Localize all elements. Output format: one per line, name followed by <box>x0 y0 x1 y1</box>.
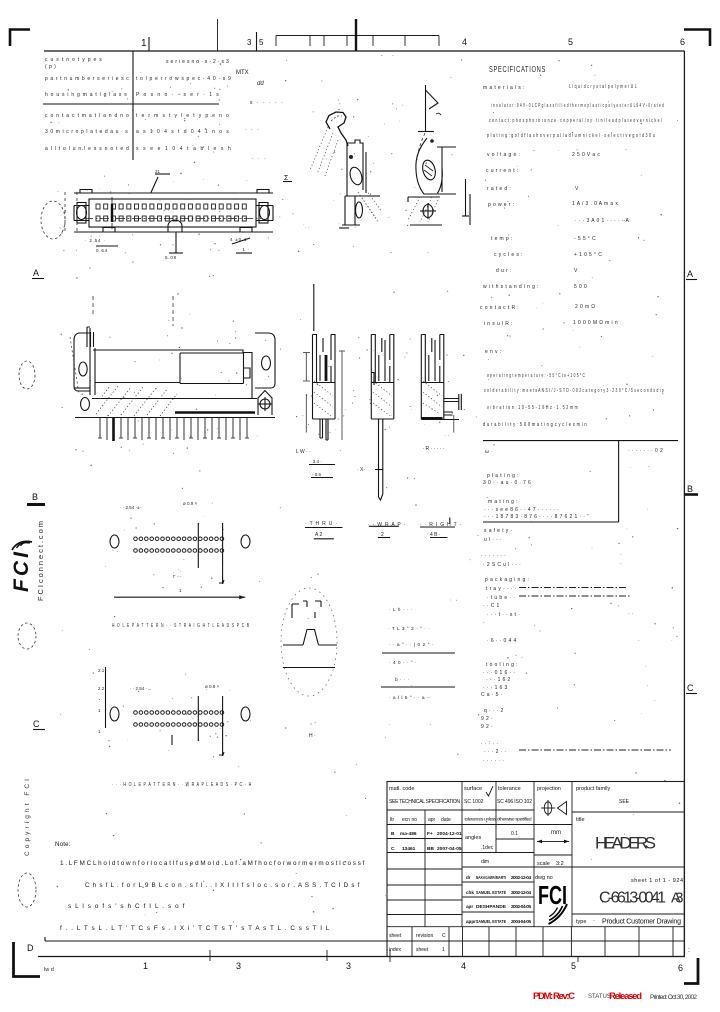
svg-text:9 2 ·: 9 2 · <box>481 716 493 722</box>
svg-text:6: 6 <box>680 37 685 47</box>
svg-text:a l l t o l u n l e s s n o: a l l t o l u n l e s s n o t e d <box>45 146 130 152</box>
svg-text:V: V <box>574 268 578 274</box>
svg-text:h o u s i n g m a t l g l a: h o u s i n g m a t l g l a s s <box>45 92 128 98</box>
svg-text:c y c l e s :: c y c l e s : <box>494 252 523 258</box>
svg-text:· 1 ·: · 1 · <box>238 247 250 252</box>
svg-text:BB: BB <box>427 846 434 852</box>
svg-text:A: A <box>33 268 39 278</box>
svg-text:· · · · ·: · · · · · <box>481 741 498 747</box>
svg-text:SAMUEL ESTATE: SAMUEL ESTATE <box>476 890 506 895</box>
svg-text:F+: F+ <box>427 831 433 837</box>
svg-text:· 2.54 ·: · 2.54 · <box>85 238 106 243</box>
svg-text:c u r r e n t :: c u r r e n t : <box>486 168 519 174</box>
svg-text:t o o l i n g :: t o o l i n g : <box>486 662 518 668</box>
svg-text:m a t i n g :: m a t i n g : <box>488 499 518 505</box>
svg-text:3: 3 <box>247 38 252 47</box>
svg-text:t r a y · · · ·: t r a y · · · · <box>486 586 517 592</box>
svg-text:· ·: · · <box>628 611 634 617</box>
svg-text:chk: chk <box>466 890 474 895</box>
svg-text:· a l l 5 ° · · a ·: · a l l 5 ° · · a · <box>389 695 429 701</box>
svg-text:L i q u i d c r y s t a l p: L i q u i d c r y s t a l p o l y m e r … <box>569 84 637 90</box>
svg-text:sheet: sheet <box>389 933 402 939</box>
svg-text:· · · 1 6 3: · · · 1 6 3 <box>483 685 508 691</box>
svg-text:5: 5 <box>571 961 576 971</box>
svg-text:projection: projection <box>537 786 561 792</box>
svg-text:· ·: · · <box>445 433 449 438</box>
svg-text:dd: dd <box>257 81 264 87</box>
svg-text:2002-12-04: 2002-12-04 <box>511 890 531 895</box>
svg-text:c o n t a c t : p h o s p h o: c o n t a c t : p h o s p h o r b r o n … <box>489 118 662 124</box>
svg-text:3 0 m i c r o p l a t e d a: 3 0 m i c r o p l a t e d a u · s <box>45 129 129 135</box>
svg-text:· · 2.54 ·±·: · · 2.54 ·±· <box>120 505 141 510</box>
svg-text:type: type <box>576 919 586 925</box>
svg-text:t e m p :: t e m p : <box>491 236 513 242</box>
svg-text:tolerances unless otherwise sp: tolerances unless otherwise specified <box>465 817 532 822</box>
svg-text:revision: revision <box>416 933 433 939</box>
svg-text:2002-12-04: 2002-12-04 <box>511 875 531 880</box>
svg-text:s · · · · ·: s · · · · · <box>250 100 284 106</box>
svg-text:ltr: ltr <box>390 817 395 823</box>
svg-text:c o n t a c t R :: c o n t a c t R : <box>480 305 519 311</box>
svg-text:2.1: 2.1 <box>98 668 105 673</box>
svg-text:ω ·: ω · <box>485 449 493 455</box>
svg-text:3: 3 <box>346 961 351 971</box>
svg-text:H O L E P A T T E R N · · S: H O L E P A T T E R N · · S T R A I G H … <box>112 623 250 629</box>
svg-text:ø 0.9 ˄: ø 0.9 ˄ <box>183 501 198 506</box>
svg-text:· · W R A P ·: · · W R A P · <box>368 522 406 528</box>
svg-text:0.64: 0.64 <box>96 248 108 253</box>
svg-text:1 0 0 0 M Ω m i n: 1 0 0 0 M Ω m i n <box>573 320 618 326</box>
svg-text:date: date <box>441 817 451 823</box>
svg-text:·: · <box>483 620 485 626</box>
svg-text:u l · · ·: u l · · · <box>484 537 502 543</box>
svg-text:3 0 · · a u · 0 . 7 6: 3 0 · · a u · 0 . 7 6 <box>483 480 531 486</box>
svg-text:SC 1002: SC 1002 <box>464 799 484 805</box>
svg-text:b · · ·: b · · · <box>395 677 410 683</box>
svg-text:· · · · · · · 0 2: · · · · · · · 0 2 <box>628 448 663 454</box>
svg-text:1 A / 3 . 0 A m a x: 1 A / 3 . 0 A m a x <box>572 201 618 207</box>
svg-text:9 2 ·: 9 2 · <box>481 724 493 730</box>
svg-text:q · · · 2: q · · · 2 <box>484 708 504 714</box>
svg-text:DESHPANDE: DESHPANDE <box>476 904 506 909</box>
svg-text:dwg no: dwg no <box>535 875 553 881</box>
svg-text:· · · 0 1 6 · ·: · · · 0 1 6 · · <box>483 670 515 676</box>
svg-text:3: 3 <box>236 961 241 971</box>
svg-text:surface: surface <box>464 786 482 792</box>
svg-text:· R · · · · ·: · R · · · · · <box>423 446 445 452</box>
svg-text:matl. code: matl. code <box>389 786 414 792</box>
svg-text:dim: dim <box>481 859 489 865</box>
svg-text:w i t h s t a n d i n g :: w i t h s t a n d i n g : <box>483 284 539 290</box>
svg-text:· 0.6: · 0.6 <box>312 472 322 477</box>
svg-text:i n s u l R :: i n s u l R : <box>484 321 513 327</box>
svg-text:p o w e r :: p o w e r : <box>488 202 514 208</box>
svg-text:C: C <box>391 846 395 852</box>
svg-text:· 4 0 · · ° ·: · 4 0 · · ° · <box>389 660 417 666</box>
svg-text:index: index <box>389 947 401 953</box>
svg-text:.1dec: .1dec <box>481 845 494 851</box>
svg-text:tolerance: tolerance <box>498 786 521 792</box>
svg-text:MTX: MTX <box>236 70 249 76</box>
svg-text:· t u b e · ·: · t u b e · · <box>487 595 515 601</box>
svg-text:mm: mm <box>551 830 561 836</box>
svg-text:5: 5 <box>568 37 573 47</box>
svg-text:P o s n o · · s e r · 1 s: P o s n o · · s e r · 1 s <box>136 92 220 98</box>
svg-text:4: 4 <box>461 961 466 971</box>
svg-text:s a f e t y ·: s a f e t y · <box>484 528 513 534</box>
svg-text:NAKAGAWA/MARTI: NAKAGAWA/MARTI <box>476 875 506 880</box>
svg-text:SC 496 ISO 102: SC 496 ISO 102 <box>497 799 532 805</box>
svg-text:v o l t a g e :: v o l t a g e : <box>487 152 520 158</box>
svg-text:r a t e d :: r a t e d : <box>487 186 511 192</box>
svg-text:· · · · · · ·: · · · · · · · <box>481 553 506 559</box>
svg-text:· · · s e e 8 6 · · 4 7: · · · s e e 8 6 · · 4 7 · · · · · · <box>484 507 559 513</box>
svg-text:apr: apr <box>466 904 473 909</box>
svg-text:· · · 1 8 7 8 3 · 8 7 6 ·: · · · 1 8 7 8 3 · 8 7 6 · · · · 8 7 6 2 … <box>484 514 585 520</box>
svg-text:s o l d e r a b i l i t y : m: s o l d e r a b i l i t y : m e e t s A … <box>484 388 664 394</box>
svg-text:·: · <box>620 552 622 558</box>
svg-text:·: · <box>168 748 170 753</box>
svg-text:v i b r a t i o n : 1 0 - 5 5: v i b r a t i o n : 1 0 - 5 5 - 1 0 H z … <box>487 405 578 411</box>
svg-text:A3: A3 <box>671 891 684 907</box>
svg-text:C: C <box>442 933 446 939</box>
svg-text:B: B <box>391 831 395 837</box>
svg-text:· L h · · ·: · L h · · · <box>389 607 413 613</box>
svg-text:x s e e 1 0 4 t a b l e s: x s e e 1 0 4 t a b l e s h <box>136 146 232 152</box>
svg-text:· · C 1: · · C 1 <box>483 603 500 609</box>
svg-text:SEE TECHNICAL SPECIFICATION: SEE TECHNICAL SPECIFICATION <box>389 799 460 805</box>
svg-text:Γ ···: Γ ··· <box>173 574 181 579</box>
svg-text:· T L 3 ° 2 · ° · ·: · T L 3 ° 2 · ° · · <box>388 626 430 632</box>
svg-text:2 0 m Ω: 2 0 m Ω <box>575 304 595 310</box>
svg-text:c o n t a c t m a t l a n d: c o n t a c t m a t l a n d n o <box>45 113 130 119</box>
svg-text:5 0 0: 5 0 0 <box>574 284 587 290</box>
svg-text:o p e r a t i n g t e m p e r: o p e r a t i n g t e m p e r a t u r e … <box>487 373 585 379</box>
svg-text:C: C <box>33 719 40 729</box>
svg-text:D: D <box>27 943 34 953</box>
svg-text:·: · <box>620 561 622 567</box>
svg-text:e n v :: e n v : <box>485 349 501 355</box>
svg-text:apr: apr <box>428 817 436 823</box>
svg-text::: : <box>688 947 690 954</box>
svg-text:· · ·: · · · <box>252 156 267 162</box>
svg-text:C a · 5 ·: C a · 5 · <box>481 692 503 698</box>
svg-text:p a r t n u m b e r s e r i: p a r t n u m b e r s e r i e s c <box>45 76 130 82</box>
svg-text:title: title <box>576 817 585 823</box>
svg-text:scale: scale <box>537 861 550 867</box>
svg-text:Printed: Oct 30, 2002: Printed: Oct 30, 2002 <box>650 994 697 1001</box>
svg-text:C h s f L . f o r L 9 B L c: C h s f L . f o r L 9 B L c o n . s f l … <box>85 882 360 889</box>
svg-text:SPECIFICATIONS: SPECIFICATIONS <box>489 64 546 74</box>
svg-text:sheet 1 of 1 - 924: sheet 1 of 1 - 924 <box>631 878 683 884</box>
svg-text:PDM: Rev:C: PDM: Rev:C <box>533 991 575 1002</box>
svg-text:5: 5 <box>259 38 264 47</box>
svg-text:0.1: 0.1 <box>511 831 518 837</box>
svg-text:4: 4 <box>462 37 467 47</box>
svg-text:2002-04-05: 2002-04-05 <box>511 904 531 909</box>
svg-text:sheet: sheet <box>416 947 429 953</box>
svg-text:ma-486: ma-486 <box>400 831 417 837</box>
svg-text:H ·: H · <box>309 733 316 739</box>
svg-text:B: B <box>32 492 38 502</box>
svg-text:B: B <box>687 484 693 494</box>
svg-text:+ 1 0 5 ° C: + 1 0 5 ° C <box>574 252 602 258</box>
svg-text:A: A <box>687 269 693 279</box>
svg-text:C-6613-0041: C-6613-0041 <box>599 890 666 907</box>
svg-text:product family: product family <box>576 786 610 792</box>
svg-text:1 . L F M C L h o l d t o w: 1 . L F M C L h o l d t o w n f o r l o … <box>60 860 365 867</box>
svg-text:C: C <box>687 683 694 693</box>
svg-text:FCI: FCI <box>10 551 33 592</box>
svg-text:· T H R U ·: · T H R U · <box>305 521 338 527</box>
svg-text:m a t e r i a l s :: m a t e r i a l s : <box>483 85 525 91</box>
svg-text:c u s t n o t y p e s: c u s t n o t y p e s <box>45 57 103 63</box>
svg-text:· 6 · · 0 4 4: · 6 · · 0 4 4 <box>487 638 517 644</box>
svg-text:dr: dr <box>466 875 471 880</box>
svg-text:p a c k a g i n g :: p a c k a g i n g : <box>485 577 529 583</box>
svg-text:ø 0.9 ˄: ø 0.9 ˄ <box>205 684 220 689</box>
svg-text:· 3.4 ·: · 3.4 · <box>310 459 322 464</box>
svg-text:13461: 13461 <box>402 846 416 852</box>
svg-text:6: 6 <box>678 963 683 973</box>
svg-text:· · · 1 6 2: · · · 1 6 2 <box>486 677 511 683</box>
svg-text:· · a ° · · | 0 2 ° ·: · · a ° · · | 0 2 ° · <box>389 642 434 648</box>
svg-text:· · · · · ·: · · · · · · <box>483 758 504 764</box>
svg-text:2007-04-05: 2007-04-05 <box>437 846 462 852</box>
svg-text:2004-04-05: 2004-04-05 <box>511 919 531 924</box>
svg-text:· X·: · X· <box>357 467 365 473</box>
svg-text:- 5 5 ° C: - 5 5 ° C <box>574 236 596 242</box>
svg-text:· · · 2 · ·: · · · 2 · · <box>484 749 506 755</box>
svg-text:3:2: 3:2 <box>556 861 564 867</box>
svg-text:2004-12-01: 2004-12-01 <box>437 831 462 837</box>
svg-text:d u r :: d u r : <box>496 268 512 274</box>
svg-text:5.08: 5.08 <box>165 255 177 260</box>
svg-text:ecn no: ecn no <box>402 817 417 823</box>
svg-text:2.2: 2.2 <box>98 686 105 691</box>
svg-text:SAMUEL ESTATE: SAMUEL ESTATE <box>476 919 506 924</box>
svg-text:1: 1 <box>442 947 445 953</box>
svg-text:t o l p e r r o w s p e c ·: t o l p e r r o w s p e c · 4 0 · s 9 <box>136 76 232 82</box>
svg-text:· 2 S C u l · · ·: · 2 S C u l · · · <box>483 562 521 568</box>
svg-text:· ·: · · <box>305 225 309 230</box>
svg-text:· · · H O L E P A T T E R N: · · · H O L E P A T T E R N · · W R A P … <box>112 782 252 788</box>
svg-text:· · ·: · · · <box>245 127 260 133</box>
svg-text:FCI: FCI <box>538 880 567 910</box>
svg-text:V: V <box>575 186 579 192</box>
svg-text:SEE: SEE <box>619 799 630 805</box>
svg-text:N o t e :: N o t e : <box>55 841 71 848</box>
svg-text:HEADERS: HEADERS <box>595 834 656 853</box>
svg-text:· · · t · · s t ·: · · · t · · s t · <box>487 612 520 618</box>
svg-text:t e r m s t y l e t y p e n: t e r m s t y l e t y p e n o <box>136 113 230 119</box>
svg-text:p l a t i n g : g o l d f l: p l a t i n g : g o l d f l a s h o v e … <box>487 133 655 139</box>
svg-text:1: 1 <box>143 961 148 971</box>
svg-text:· · 2.54 ·→: · · 2.54 ·→ <box>130 686 152 691</box>
svg-text:( p ): ( p ) <box>45 64 57 70</box>
svg-text:s L l s o f s ' s h C f I: s L l s o f s ' s h C f I L . s o f <box>68 903 185 910</box>
svg-text:f . . L T s L . L T ' T C s: f . . L T s L . L T ' T C s F s . I X i … <box>60 925 330 932</box>
svg-text:d u r a b i l i t y : 5 0 0: d u r a b i l i t y : 5 0 0 m a t i n g … <box>483 422 587 428</box>
svg-text:angles: angles <box>465 835 481 841</box>
svg-text:L W · ·: L W · · <box>296 449 311 455</box>
svg-text:2 5 0 V a c: 2 5 0 V a c <box>572 152 600 158</box>
svg-text:p l a t i n g :: p l a t i n g : <box>487 473 519 479</box>
svg-text:· · · 3 A 0 1 · · · ·: · · · 3 A 0 1 · · · · · A <box>575 218 629 224</box>
svg-text:appr: appr <box>466 919 476 924</box>
svg-text:a s 1 0 4 s t d 0 4 1 n o: a s 1 0 4 s t d 0 4 1 n o s <box>136 129 230 135</box>
svg-text:i n s u l a t o r : 9 4 V - 0: i n s u l a t o r : 9 4 V - 0 L C P g l … <box>491 103 664 109</box>
svg-text:lw d: lw d <box>44 967 54 973</box>
svg-text:A 2: A 2 <box>315 532 322 538</box>
svg-text:Released: Released <box>609 991 642 1002</box>
svg-text:1: 1 <box>141 38 147 49</box>
svg-text:Product Customer Drawing: Product Customer Drawing <box>602 919 681 926</box>
svg-text:21: 21 <box>155 169 161 174</box>
